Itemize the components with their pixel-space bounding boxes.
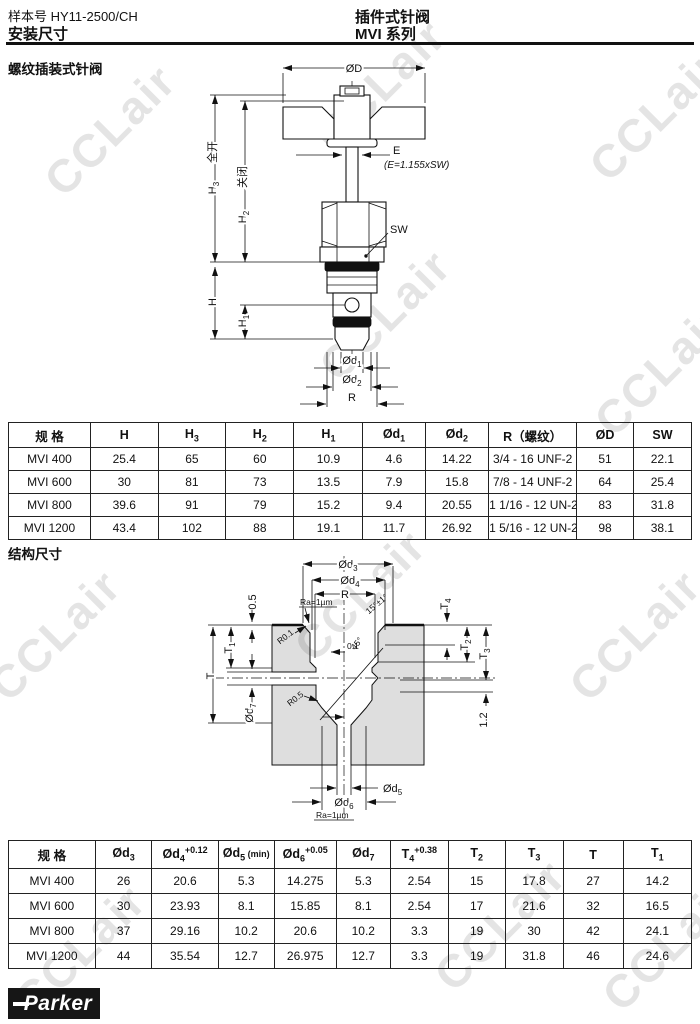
table-header-cell: T1 <box>623 841 691 869</box>
table-cell: 31.8 <box>505 944 563 969</box>
table-cell: 15.8 <box>425 471 489 494</box>
table-cell: 44 <box>95 944 152 969</box>
table-cell: 32 <box>563 894 623 919</box>
table-cell: 39.6 <box>90 494 158 517</box>
table-cell: 15.85 <box>274 894 336 919</box>
table-cell: 23.93 <box>152 894 218 919</box>
table-cell: MVI 600 <box>9 471 91 494</box>
table-cell: 3.3 <box>390 944 448 969</box>
structure-dims-table: 规 格Ød3Ød4+0.12Ød5 (min)Ød6+0.05Ød7T4+0.3… <box>8 840 692 969</box>
parker-logo-arrow <box>13 1002 29 1006</box>
table-cell: 5.3 <box>336 869 390 894</box>
table-row: MVI 12004435.5412.726.97512.73.31931.846… <box>9 944 692 969</box>
table-cell: 1 1/16 - 12 UN-2 <box>489 494 577 517</box>
table-cell: MVI 400 <box>9 869 96 894</box>
surface-finish-note: Ra=1µm <box>300 597 333 607</box>
table-header-cell: R（螺纹） <box>489 423 577 448</box>
table-cell: MVI 800 <box>9 494 91 517</box>
table-row: MVI 6003023.938.115.858.12.541721.63216.… <box>9 894 692 919</box>
table-header-row: 规 格Ød3Ød4+0.12Ød5 (min)Ød6+0.05Ød7T4+0.3… <box>9 841 692 869</box>
table-cell: 8.1 <box>336 894 390 919</box>
oring-collar <box>325 262 379 271</box>
dim-label-od2: Ød2 <box>342 374 362 388</box>
valve-nose <box>335 327 369 350</box>
table-cell: MVI 400 <box>9 448 91 471</box>
table-cell: 19.1 <box>294 517 363 540</box>
series-title: MVI 系列 <box>355 23 416 44</box>
cavity-drawing: Ød3 Ød4 R Ra=1µm 15°±1° 45° R0.1 R0.5 0.… <box>0 550 700 835</box>
table-cell: MVI 600 <box>9 894 96 919</box>
table-cell: 38.1 <box>633 517 691 540</box>
table-cell: 37 <box>95 919 152 944</box>
dim-label-t2: T2 <box>459 639 473 651</box>
table-cell: 19 <box>448 919 505 944</box>
dim-label-od3: Ød3 <box>338 559 358 573</box>
table-cell: 83 <box>577 494 634 517</box>
dim-label-od: ØD <box>346 63 363 75</box>
table-cell: 81 <box>158 471 226 494</box>
table-header-cell: Ød1 <box>363 423 425 448</box>
table-cell: 1 5/16 - 12 UN-2 <box>489 517 577 540</box>
table-cell: 21.6 <box>505 894 563 919</box>
table-cell: 22.1 <box>633 448 691 471</box>
dim-label-12: 1.2 <box>478 712 490 727</box>
table-row: MVI 120043.41028819.111.726.921 5/16 - 1… <box>9 517 692 540</box>
dim-label-sw: SW <box>390 224 408 236</box>
table-header-cell: T3 <box>505 841 563 869</box>
table-cell: 35.54 <box>152 944 218 969</box>
table-header-cell: ØD <box>577 423 634 448</box>
table-cell: 30 <box>505 919 563 944</box>
table-cell: 4.6 <box>363 448 425 471</box>
dim-label-od6: Ød6 <box>334 797 354 811</box>
table-header-cell: H1 <box>294 423 363 448</box>
dim-label-h3: H3 <box>207 181 221 194</box>
cross-hole <box>345 298 359 312</box>
header-rule <box>6 42 694 45</box>
table-cell: 26.92 <box>425 517 489 540</box>
dim-label-e: E <box>393 145 400 157</box>
table-cell: 64 <box>577 471 634 494</box>
dim-label-od1: Ød1 <box>342 355 362 369</box>
table-header-cell: SW <box>633 423 691 448</box>
table-header-cell: Ød7 <box>336 841 390 869</box>
table-cell: 60 <box>226 448 294 471</box>
valve-stem-and-body <box>320 147 386 350</box>
table-header-cell: 规 格 <box>9 423 91 448</box>
table-row: MVI 4002620.65.314.2755.32.541517.82714.… <box>9 869 692 894</box>
table-cell: 42 <box>563 919 623 944</box>
oring-nose <box>333 317 371 327</box>
table-cell: 26.975 <box>274 944 336 969</box>
table-cell: 5.3 <box>218 869 274 894</box>
table-cell: 12.7 <box>336 944 390 969</box>
dim-label-od5: Ød5 <box>383 783 403 797</box>
cavity-dimensions: Ød3 Ød4 R Ra=1µm 15°±1° 45° R0.1 R0.5 0.… <box>205 559 493 820</box>
table-header-cell: Ød6+0.05 <box>274 841 336 869</box>
table-cell: 26 <box>95 869 152 894</box>
table-cell: 14.2 <box>623 869 691 894</box>
table-header-cell: T4+0.38 <box>390 841 448 869</box>
table-cell: 7.9 <box>363 471 425 494</box>
table-cell: 31.8 <box>633 494 691 517</box>
table-header-cell: H2 <box>226 423 294 448</box>
dim-label-h1: H1 <box>237 314 251 327</box>
table-cell: 10.9 <box>294 448 363 471</box>
table-cell: 102 <box>158 517 226 540</box>
dim-label-od4: Ød4 <box>340 575 360 589</box>
dim-label-t: T <box>205 672 217 679</box>
table-header-cell: Ød3 <box>95 841 152 869</box>
table-cell: 15 <box>448 869 505 894</box>
table-row: MVI 8003729.1610.220.610.23.319304224.1 <box>9 919 692 944</box>
table-cell: 16.5 <box>623 894 691 919</box>
table-cell: 17.8 <box>505 869 563 894</box>
table-cell: 8.1 <box>218 894 274 919</box>
table-cell: 10.2 <box>218 919 274 944</box>
table-row: MVI 60030817313.57.915.87/8 - 14 UNF-264… <box>9 471 692 494</box>
table-cell: 30 <box>95 894 152 919</box>
table-header-cell: 规 格 <box>9 841 96 869</box>
table-header-cell: H <box>90 423 158 448</box>
table-cell: 24.6 <box>623 944 691 969</box>
dim-label-r: R <box>348 392 356 404</box>
table-cell: 73 <box>226 471 294 494</box>
dim-label-h: H <box>207 298 219 306</box>
table-row: MVI 80039.6917915.29.420.551 1/16 - 12 U… <box>9 494 692 517</box>
table-cell: 19 <box>448 944 505 969</box>
table-cell: MVI 800 <box>9 919 96 944</box>
table-cell: 12.7 <box>218 944 274 969</box>
table-cell: 98 <box>577 517 634 540</box>
table-cell: 20.6 <box>274 919 336 944</box>
dim-label-od7: Ød7 <box>244 703 258 723</box>
table-cell: 20.55 <box>425 494 489 517</box>
table-cell: 3.3 <box>390 919 448 944</box>
table-cell: 7/8 - 14 UNF-2 <box>489 471 577 494</box>
table-header-cell: Ød2 <box>425 423 489 448</box>
table-cell: 17 <box>448 894 505 919</box>
table-cell: 27 <box>563 869 623 894</box>
table-cell: 65 <box>158 448 226 471</box>
table-cell: 10.2 <box>336 919 390 944</box>
table-cell: 25.4 <box>633 471 691 494</box>
installation-drawing: ØD 全开 H3 关闭 H2 E (E=1.155xSW) SW <box>0 55 700 417</box>
table-cell: 51 <box>577 448 634 471</box>
dim-label-r-thread: R <box>341 589 349 601</box>
table-cell: 14.275 <box>274 869 336 894</box>
install-dims-table: 规 格HH3H2H1Ød1Ød2R（螺纹）ØDSWMVI 40025.46560… <box>8 422 692 540</box>
tol01-note: 0.1 <box>347 641 359 651</box>
table-cell: 29.16 <box>152 919 218 944</box>
table-header-cell: T2 <box>448 841 505 869</box>
dim-label-t4: T4 <box>439 598 453 610</box>
table-header-row: 规 格HH3H2H1Ød1Ød2R（螺纹）ØDSW <box>9 423 692 448</box>
parker-logo-text: Parker <box>24 993 92 1014</box>
dim-label-closed: 关闭 <box>235 166 249 188</box>
table-cell: 91 <box>158 494 226 517</box>
dim-label-05: 0.5 <box>247 594 259 609</box>
table-cell: 24.1 <box>623 919 691 944</box>
valve-handle <box>283 86 425 147</box>
table-cell: 79 <box>226 494 294 517</box>
table-cell: MVI 1200 <box>9 944 96 969</box>
table-cell: 13.5 <box>294 471 363 494</box>
chamfer-angle-note: 15°±1° <box>364 592 390 616</box>
table-cell: 2.54 <box>390 869 448 894</box>
table-cell: 30 <box>90 471 158 494</box>
parker-logo: Parker <box>8 988 100 1019</box>
table-header-cell: H3 <box>158 423 226 448</box>
dim-label-h2: H2 <box>237 210 251 223</box>
table-header-cell: Ød5 (min) <box>218 841 274 869</box>
table-cell: 2.54 <box>390 894 448 919</box>
table-cell: 3/4 - 16 UNF-2 <box>489 448 577 471</box>
table-cell: 88 <box>226 517 294 540</box>
table-cell: 9.4 <box>363 494 425 517</box>
table-cell: 14.22 <box>425 448 489 471</box>
table-cell: 11.7 <box>363 517 425 540</box>
page-subtitle: 安装尺寸 <box>8 23 68 44</box>
table-row: MVI 40025.4656010.94.614.223/4 - 16 UNF-… <box>9 448 692 471</box>
catalog-page: CCLairCCLairCCLairCCLairCCLairCCLairCCLa… <box>0 0 700 1024</box>
table-header-cell: Ød4+0.12 <box>152 841 218 869</box>
dim-label-t1: T1 <box>223 642 237 654</box>
table-cell: 25.4 <box>90 448 158 471</box>
table-cell: 20.6 <box>152 869 218 894</box>
table-cell: 43.4 <box>90 517 158 540</box>
table-cell: 15.2 <box>294 494 363 517</box>
table-cell: MVI 1200 <box>9 517 91 540</box>
surface-finish-note-bottom: Ra=1µm <box>316 810 349 820</box>
dim-note-e: (E=1.155xSW) <box>384 160 449 171</box>
table-header-cell: T <box>563 841 623 869</box>
dim-label-t3: T3 <box>478 648 492 660</box>
dim-label-fully-open: 全开 <box>205 141 219 163</box>
table-cell: 46 <box>563 944 623 969</box>
